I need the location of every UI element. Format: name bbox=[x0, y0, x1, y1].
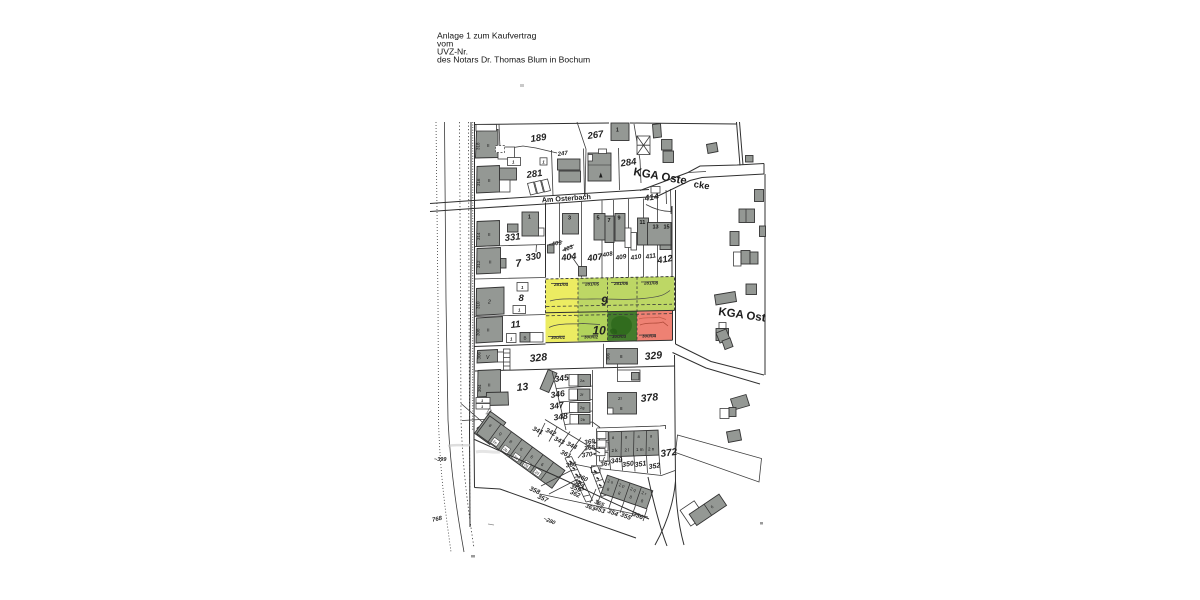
svg-text:des Notars Dr. Thomas Blum in: des Notars Dr. Thomas Blum in Bochum bbox=[437, 55, 590, 65]
svg-text:378: 378 bbox=[640, 391, 659, 405]
svg-text:8: 8 bbox=[519, 293, 525, 304]
svg-text:331: 331 bbox=[504, 231, 521, 244]
svg-text:316: 316 bbox=[476, 178, 481, 186]
svg-text:300/01: 300/01 bbox=[551, 335, 565, 340]
svg-text:312: 312 bbox=[476, 260, 481, 268]
svg-text:300/02: 300/02 bbox=[584, 334, 598, 339]
svg-text:13: 13 bbox=[516, 381, 529, 394]
svg-text:~399: ~399 bbox=[434, 457, 447, 463]
svg-text:328: 328 bbox=[529, 351, 548, 365]
svg-text:2g: 2g bbox=[580, 405, 584, 410]
svg-text:3: 3 bbox=[568, 216, 571, 222]
svg-text:348: 348 bbox=[553, 411, 569, 423]
svg-text:II: II bbox=[488, 178, 491, 183]
svg-text:13: 13 bbox=[653, 225, 659, 231]
svg-text:2 l: 2 l bbox=[625, 448, 630, 453]
svg-text:2 n: 2 n bbox=[648, 447, 655, 452]
svg-text:281/04: 281/04 bbox=[553, 282, 568, 287]
svg-text:5: 5 bbox=[597, 216, 600, 222]
svg-text:1: 1 bbox=[616, 128, 619, 134]
svg-text:345: 345 bbox=[554, 372, 570, 384]
svg-text:347: 347 bbox=[549, 399, 566, 411]
svg-text:2a: 2a bbox=[580, 378, 585, 383]
svg-text:346: 346 bbox=[550, 388, 566, 400]
svg-text:306: 306 bbox=[477, 351, 482, 359]
svg-text:308: 308 bbox=[476, 328, 481, 336]
svg-text:281/08: 281/08 bbox=[643, 280, 658, 285]
svg-text:II: II bbox=[488, 383, 491, 388]
svg-text:314: 314 bbox=[476, 232, 481, 240]
svg-text:304: 304 bbox=[477, 384, 482, 392]
svg-text:2!: 2! bbox=[618, 396, 622, 401]
svg-text:310: 310 bbox=[476, 301, 481, 309]
svg-text:II: II bbox=[487, 143, 490, 148]
svg-text:1 m: 1 m bbox=[636, 447, 644, 452]
svg-text:7: 7 bbox=[608, 218, 611, 224]
svg-text:281: 281 bbox=[525, 168, 543, 181]
svg-text:cke: cke bbox=[693, 179, 710, 192]
svg-text:9: 9 bbox=[601, 294, 608, 308]
svg-text:11: 11 bbox=[510, 319, 521, 331]
svg-text:1: 1 bbox=[528, 215, 531, 221]
svg-text:9: 9 bbox=[618, 216, 621, 222]
svg-text:15: 15 bbox=[664, 225, 670, 231]
svg-text:189: 189 bbox=[530, 132, 548, 145]
svg-text:300/04: 300/04 bbox=[642, 333, 656, 338]
svg-text:2 k: 2 k bbox=[612, 448, 619, 453]
svg-text:11: 11 bbox=[640, 220, 646, 226]
svg-text:329: 329 bbox=[644, 349, 663, 363]
svg-text:281/06: 281/06 bbox=[613, 281, 628, 286]
svg-text:2: 2 bbox=[487, 300, 491, 306]
svg-text:306: 306 bbox=[606, 352, 611, 360]
svg-text:318: 318 bbox=[476, 142, 481, 150]
svg-text:II: II bbox=[487, 328, 490, 333]
svg-text:B: B bbox=[524, 336, 527, 341]
svg-text:II: II bbox=[489, 260, 492, 265]
svg-text:2b: 2b bbox=[581, 417, 586, 422]
svg-text:300/03: 300/03 bbox=[612, 334, 626, 339]
svg-text:281/05: 281/05 bbox=[584, 281, 599, 286]
svg-text:II: II bbox=[488, 232, 491, 237]
